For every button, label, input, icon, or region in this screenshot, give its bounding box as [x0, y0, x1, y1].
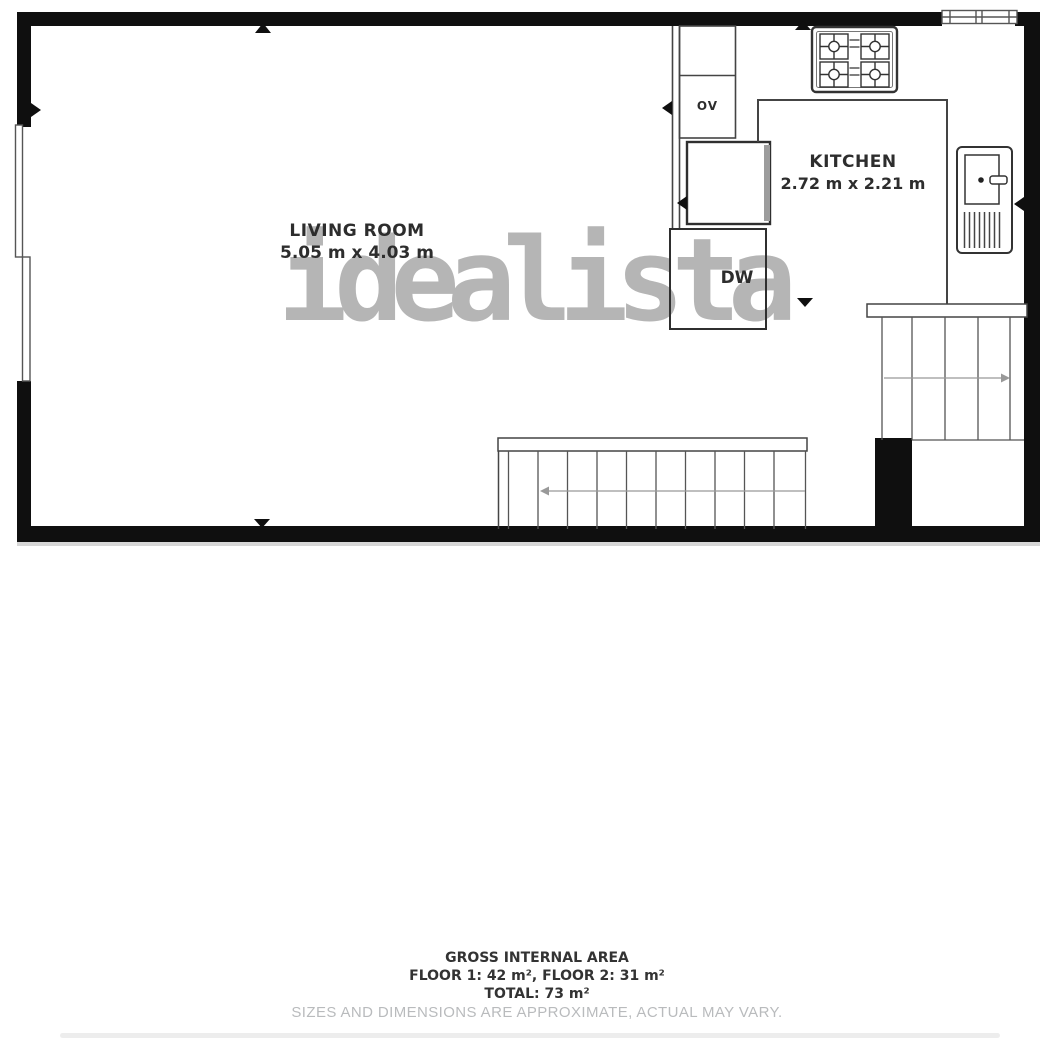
- stair-direction-arrow-right: [884, 374, 1010, 383]
- top-right-window: [942, 11, 1017, 24]
- marker-below-dw-down: [797, 298, 813, 307]
- kitchen-dimensions: 2.72 m x 2.21 m: [773, 174, 933, 193]
- left-window-lower: [23, 257, 31, 381]
- staircase-right: [867, 304, 1027, 440]
- stair-direction-arrow-left: [540, 487, 805, 496]
- marker-partition: [662, 101, 672, 115]
- kitchen-boundary: [758, 100, 947, 304]
- kitchen-label: KITCHEN: [773, 152, 933, 172]
- left-window-upper: [16, 125, 23, 257]
- floorplan-page: idealista: [0, 0, 1056, 1040]
- area-summary: GROSS INTERNAL AREA FLOOR 1: 42 m², FLOO…: [9, 949, 1056, 1022]
- total-area: TOTAL: 73 m²: [9, 985, 1056, 1003]
- disclaimer-text: SIZES AND DIMENSIONS ARE APPROXIMATE, AC…: [9, 1004, 1056, 1022]
- gross-internal-area-title: GROSS INTERNAL AREA: [9, 949, 1056, 967]
- fridge-unit: [687, 142, 770, 224]
- kitchen-partition: [673, 26, 680, 229]
- boiler-icon: [957, 147, 1012, 253]
- living-room-label: LIVING ROOM: [257, 221, 457, 241]
- marker-right-wall: [1014, 197, 1024, 211]
- marker-left-wall: [31, 103, 41, 117]
- oven-label: OV: [681, 99, 734, 113]
- oven-cabinet: [680, 26, 736, 138]
- floor-breakdown: FLOOR 1: 42 m², FLOOR 2: 31 m²: [9, 967, 1056, 985]
- living-room-dimensions: 5.05 m x 4.03 m: [257, 243, 457, 263]
- marker-fridge: [677, 196, 687, 210]
- dishwasher-label: DW: [707, 268, 767, 288]
- stove-icon: [812, 27, 897, 92]
- staircase-bottom: [498, 438, 807, 529]
